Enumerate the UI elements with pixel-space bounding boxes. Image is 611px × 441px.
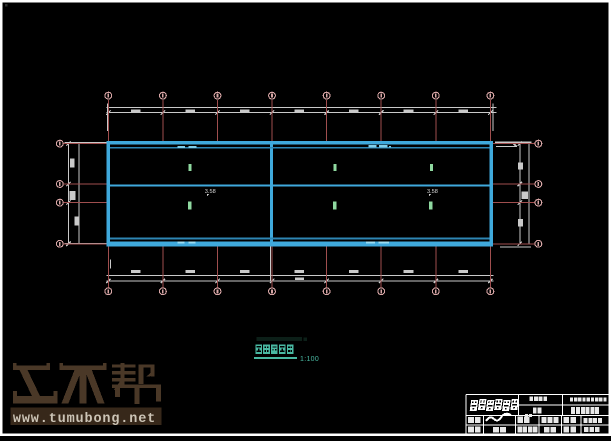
svg-text:3.58: 3.58 — [205, 189, 216, 195]
svg-text:www.tumubong.net: www.tumubong.net — [13, 412, 156, 427]
svg-text:3.58: 3.58 — [427, 189, 438, 195]
svg-text:1:100: 1:100 — [300, 356, 319, 363]
